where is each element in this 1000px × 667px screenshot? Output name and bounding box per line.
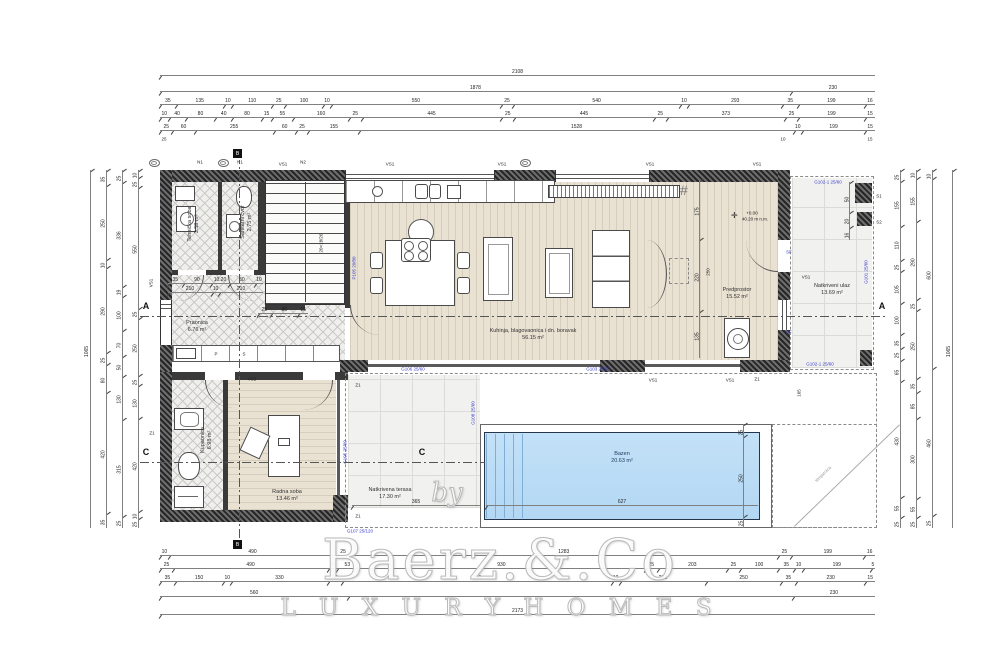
dim-chain-pool-width: 627	[486, 500, 758, 508]
grate-icon: #	[680, 182, 688, 198]
room-area: 3.58 m²	[194, 206, 201, 241]
shaft-tag: SF	[786, 330, 792, 335]
dim-value: 25	[893, 170, 903, 181]
section-marker-c: C	[419, 447, 426, 457]
dim-chain-left-4: 102555025250251304201025	[131, 170, 141, 528]
dim-chain-right-1: 25155110251051003525654305525	[893, 170, 903, 528]
dim-value: 1065	[945, 170, 955, 528]
dim-value: 250	[706, 576, 781, 584]
fixture-tag-icon	[149, 159, 160, 167]
wall-segment	[218, 182, 222, 270]
dim-chain-bottom-1: 104902512832519916	[160, 548, 875, 558]
chair-icon	[457, 252, 470, 269]
dim-chain-right-total: 1065	[945, 170, 955, 528]
dim-value: 25	[131, 177, 141, 187]
dim-chain-hall-2: 21010210	[168, 287, 263, 295]
room-name: Sanitarni čvor	[240, 205, 247, 239]
dim-value: 199	[803, 563, 871, 571]
window	[778, 300, 790, 330]
laptop-icon	[278, 438, 290, 446]
dim-value: 85	[909, 392, 919, 418]
dim-chain-bottom-2: 254901053930252032510035101995	[160, 561, 875, 571]
wall-tag: VS1	[649, 378, 658, 383]
dim-chain-bottom-4: 560230	[160, 589, 875, 599]
wall-segment	[235, 372, 303, 380]
room-area: 6.76 m²	[186, 327, 208, 334]
dim-value: 445	[514, 112, 654, 120]
dim-value: 15	[865, 576, 875, 584]
dim-value: 373	[667, 112, 785, 120]
wall-tag: VS1	[753, 162, 762, 167]
laundry-sink	[176, 348, 196, 359]
section-marker-c: C	[143, 447, 150, 457]
dim-value: 203	[658, 563, 727, 571]
wall-segment	[860, 350, 872, 366]
dim-chain-right-2: 101552902525035853005525	[909, 170, 919, 528]
dim-value: 25	[336, 550, 350, 558]
dim-value: 2173	[160, 609, 875, 617]
dim-value: 15	[865, 112, 875, 120]
dim-value: 130	[115, 376, 125, 419]
dim-value: 199	[791, 550, 864, 558]
shower-icon	[174, 486, 204, 508]
dim-value: 25	[738, 424, 746, 436]
dim-value: 25	[893, 517, 903, 528]
dim-value: 40	[215, 112, 232, 120]
room-label: Kuhinja, blagovaonica i dn. boravak 56.1…	[490, 328, 577, 342]
dim-chain-left-2: 3525010290258042035	[99, 170, 109, 528]
wall-tag: Z1	[754, 377, 759, 382]
section-marker-b: B	[233, 540, 242, 549]
dim-label: 10	[780, 137, 785, 142]
dim-value: 35	[778, 563, 794, 571]
dim-value: 105	[893, 271, 903, 303]
dim-value: 300	[909, 418, 919, 498]
wall-tag: VS1	[646, 162, 655, 167]
window	[555, 170, 650, 182]
dim-value: 60	[274, 125, 296, 133]
wall-segment	[160, 372, 172, 522]
dim-value: 25	[645, 563, 658, 571]
dim-value: 10	[328, 563, 337, 571]
dim-chain-vestibule: 175220135	[694, 180, 702, 358]
dim-value: 1878	[160, 86, 791, 94]
dim-value: 25	[115, 170, 125, 182]
wall-tag: VS1	[498, 162, 507, 167]
dim-value: 550	[131, 187, 141, 307]
dim-value: 16	[864, 550, 875, 558]
wall-segment	[223, 380, 228, 510]
dim-value: 199	[802, 125, 865, 133]
covered-entrance-outline	[790, 176, 874, 370]
room-area: 13.69 m²	[814, 290, 850, 297]
dim-value: 150	[175, 576, 223, 584]
niche-outline	[669, 258, 689, 284]
washer-label: P	[214, 352, 217, 357]
section-marker-a: A	[143, 301, 150, 311]
burner-icon	[404, 251, 414, 261]
dim-chain-porch: 502016	[844, 182, 852, 240]
glass-wall	[337, 380, 340, 495]
wall-tag: VS1	[726, 378, 735, 383]
dim-value: 250	[909, 310, 919, 378]
dim-value: 155	[893, 181, 903, 226]
dim-value: 550	[331, 99, 500, 107]
section-marker-a: A	[879, 301, 886, 311]
room-label: Radna soba 13.46 m²	[272, 489, 302, 503]
dim-value: 55	[272, 112, 294, 120]
room-area: 6.98 m²	[207, 427, 214, 453]
dim-value: 25	[654, 112, 667, 120]
room-label: Kupaonica 6.98 m²	[200, 427, 214, 453]
wall-tag: VS1	[149, 279, 154, 288]
dim-value: 40	[169, 112, 186, 120]
basin-icon	[180, 412, 199, 427]
dim-value: 293	[688, 99, 782, 107]
wall-tag: S2	[876, 220, 882, 225]
dim-value: 490	[169, 550, 336, 558]
chair-icon	[370, 252, 383, 269]
wall-segment	[857, 212, 872, 226]
dim-value: 25	[131, 518, 141, 528]
dim-value: 230	[793, 591, 875, 599]
dim-value: 25	[778, 550, 792, 558]
dim-value: 540	[513, 99, 679, 107]
floor-plan-canvas: 2108 1878230 351351011025100105502554010…	[0, 0, 1000, 667]
shaft-tag: SF	[786, 250, 792, 255]
wall-tag: S1	[876, 194, 882, 199]
wall-segment	[855, 183, 872, 203]
wall-tag: N1	[197, 160, 203, 165]
room-area: 17.30 m²	[368, 494, 411, 501]
room-area: 56.15 m²	[490, 335, 577, 342]
dim-value: 35	[168, 278, 183, 286]
wall-segment	[258, 182, 265, 270]
room-label: Natkrivena terasa 17.30 m²	[368, 487, 411, 501]
wall-tag: VS2	[248, 377, 257, 382]
dim-value: 25	[258, 308, 271, 316]
dim-value: 53	[337, 563, 358, 571]
dim-value: 25	[272, 99, 285, 107]
dim-value: 980	[342, 576, 611, 584]
dim-value: 35	[160, 576, 175, 584]
dim-value: 135	[694, 311, 702, 358]
room-name: Natkriveni ulaz	[814, 283, 850, 290]
dim-value: 16	[844, 227, 852, 240]
sofa	[592, 230, 630, 308]
dim-value: 250	[131, 318, 141, 375]
beam-label: G103 25/60	[586, 367, 610, 372]
room-area: 2.75 m²	[247, 205, 254, 239]
dim-value: 255	[195, 125, 274, 133]
room-name: Kuhinja, blagovaonica i dn. boravak	[490, 328, 577, 335]
dim-value: 627	[486, 500, 758, 508]
dim-value: 25	[785, 112, 798, 120]
dim-value: 20	[844, 212, 852, 227]
dim-value: 110	[232, 99, 272, 107]
beam-label: P105 20/80	[352, 256, 357, 279]
dim-value: 2108	[160, 70, 875, 78]
stair-center-line	[305, 182, 306, 302]
dim-value: 10	[160, 112, 169, 120]
room-area: 13.46 m²	[272, 496, 302, 503]
wall-segment	[254, 270, 265, 275]
wall-segment	[340, 360, 368, 372]
dim-value: 35	[99, 170, 109, 185]
dim-value: 315	[115, 419, 125, 516]
dim-value: 250	[99, 185, 109, 259]
room-label: Tehnička soba 3.58 m²	[187, 206, 201, 241]
window	[160, 300, 172, 345]
beam-label: G108 25/60	[471, 401, 476, 425]
beam-label: G101 25/60	[864, 260, 869, 284]
dim-value: 210	[219, 287, 263, 295]
dim-chain-top-2: 1878230	[160, 84, 875, 94]
dim-value: 365	[352, 500, 480, 508]
section-marker-b: B	[233, 149, 242, 158]
dim-value: 19	[115, 286, 125, 297]
dim-value: 25	[738, 516, 746, 528]
wall-tag: Z1	[149, 431, 154, 436]
dim-value: 1283	[350, 550, 778, 558]
room-name: Tehnička soba	[187, 206, 194, 241]
stair-note: 20×18/26	[319, 234, 324, 253]
dim-value: 490	[173, 563, 328, 571]
dim-value: 930	[358, 563, 645, 571]
wall-tag: VS1	[802, 275, 811, 280]
kitchen-sink-icon	[415, 184, 428, 199]
dim-value	[348, 596, 792, 599]
dim-value: 80	[232, 112, 261, 120]
toilet-icon	[178, 452, 200, 480]
dim-value: 50	[115, 356, 125, 376]
wall-tag: Z1	[355, 383, 360, 388]
dryer-label: S	[242, 352, 245, 357]
dim-value: 25	[131, 375, 141, 385]
dim-chain-bottom-3: 351501033035980102932503523015	[160, 574, 875, 584]
fixture-tag-icon	[218, 159, 229, 167]
hob-knob-icon	[372, 186, 383, 197]
dim-value: 560	[160, 591, 348, 599]
dim-chain-top-5: 2560255602515515281019915	[160, 123, 875, 133]
dim-value: 35	[893, 334, 903, 348]
room-name: Radna soba	[272, 489, 302, 496]
dim-chain-left-total: 1065	[83, 170, 93, 528]
wall-segment	[740, 360, 790, 372]
dim-value: 80	[99, 364, 109, 391]
dim-label: 165	[797, 389, 802, 397]
dim-value: 10	[909, 170, 919, 178]
room-label: Predprostor 15.52 m²	[723, 287, 752, 301]
dim-value: 55	[893, 497, 903, 516]
wall-tag: VS1	[279, 162, 288, 167]
dim-value: 35	[99, 513, 109, 528]
section-line-b	[239, 160, 240, 538]
dim-value: 25	[501, 112, 514, 120]
dim-value: 35	[781, 576, 796, 584]
wall-segment	[160, 510, 348, 522]
dim-value: 130	[131, 385, 141, 417]
dim-value: 25	[296, 125, 308, 133]
elevation-datum: 40.20 m n.m.	[742, 217, 768, 222]
dim-value: 25	[893, 348, 903, 359]
dim-chain-top-4: 104080408015551602544525445253732519915	[160, 110, 875, 120]
burner-icon	[404, 241, 414, 251]
dim-chain-terrace: 365	[352, 500, 480, 508]
dim-value: 430	[893, 381, 903, 497]
dim-value: 293	[620, 576, 706, 584]
wall-segment	[206, 270, 226, 275]
dim-chain-top-total: 2108	[160, 68, 875, 78]
dim-chain-bottom-total: 2173	[160, 607, 875, 617]
dim-chain-hall-1: 359010.208010	[168, 278, 263, 286]
dim-value: 135	[176, 99, 224, 107]
room-name: Praonica	[186, 320, 208, 327]
dim-value: 25	[925, 515, 935, 528]
dim-value: 60	[172, 125, 194, 133]
dim-value: 10	[925, 170, 935, 178]
section-line-a	[140, 316, 888, 317]
dim-value: 16	[865, 99, 875, 107]
dim-value: 290	[99, 267, 109, 353]
dim-chain-left-3: 2533619100705013031525	[115, 170, 125, 528]
fixture-tag-icon	[520, 159, 531, 167]
dim-value: 25	[99, 352, 109, 364]
wall-tag: N1	[237, 160, 243, 165]
dim-value: 15	[262, 112, 272, 120]
beam-label: G107 25/120	[347, 529, 373, 534]
dim-value: 35	[909, 378, 919, 392]
dim-value: 445	[362, 112, 502, 120]
beam-label: G106 25/60	[401, 367, 425, 372]
dim-value: 230	[796, 576, 866, 584]
dim-value: 70	[115, 330, 125, 355]
dim-chain-top-3: 3513510110251001055025540102933519916	[160, 97, 875, 107]
dim-value: 25	[349, 112, 362, 120]
dim-value: 199	[798, 112, 865, 120]
dim-value: 90	[183, 278, 212, 286]
island-top-line	[488, 244, 509, 295]
dim-value: 10	[612, 576, 620, 584]
dim-value: 250	[738, 436, 746, 515]
dim-value: 15	[865, 125, 875, 133]
dim-chain-stair-door: 258015	[258, 308, 308, 316]
dim-value: 25	[160, 563, 173, 571]
dim-value: 35	[160, 99, 176, 107]
dim-value: 230	[791, 86, 875, 94]
dim-value: 155	[308, 125, 359, 133]
dim-value: 35	[328, 576, 343, 584]
room-area: 20.63 m²	[611, 458, 633, 465]
wall-segment	[172, 372, 205, 380]
room-name: Natkrivena terasa	[368, 487, 411, 494]
dim-value: 25	[160, 125, 172, 133]
room-label: Sanitarni čvor 2.75 m²	[240, 205, 254, 239]
kitchen-sink-icon	[429, 184, 441, 199]
dim-label: 15	[867, 137, 872, 142]
elevation-cross-icon: ✛	[731, 211, 738, 220]
entry-door-opening	[778, 240, 790, 272]
section-line-c	[140, 462, 485, 463]
beam-label: G102-1 25/60	[806, 362, 834, 367]
dim-label: 25	[161, 137, 166, 142]
beam-label: G102-1 25/60	[814, 180, 842, 185]
shower-drain-line	[178, 496, 198, 497]
chair-icon	[457, 277, 470, 294]
dim-value: 100	[115, 296, 125, 330]
dim-value: 336	[115, 182, 125, 285]
dim-value: 80	[229, 278, 255, 286]
dim-value: 10	[255, 278, 263, 286]
dim-value: 35	[782, 99, 798, 107]
sliding-glass-door	[645, 364, 740, 367]
dim-value: 25	[909, 299, 919, 310]
dim-value: 100	[893, 303, 903, 334]
dim-value: 55	[909, 498, 919, 517]
dim-chain-pool-height: 2525025	[738, 424, 746, 528]
dim-value: 25	[909, 517, 919, 528]
dim-value: 175	[694, 180, 702, 239]
dim-value: 10.20	[211, 278, 229, 286]
dim-value: 160	[293, 112, 349, 120]
room-name: Bazen	[611, 451, 633, 458]
room-name: Kupaonica	[200, 427, 207, 453]
dim-value: 1065	[83, 170, 93, 528]
burner-icon	[418, 241, 428, 251]
dim-value: 25	[501, 99, 514, 107]
room-area: 15.52 m²	[723, 294, 752, 301]
wall-tag: N2	[300, 160, 306, 165]
room-label: Praonica 6.76 m²	[186, 320, 208, 334]
dim-value: 220	[694, 239, 702, 312]
dim-value: 5	[871, 563, 875, 571]
dim-value: 15	[298, 308, 308, 316]
dim-value: 210	[168, 287, 212, 295]
dim-value: 290	[909, 221, 919, 299]
dim-value: 10	[131, 511, 141, 518]
dim-value: 10	[99, 259, 109, 267]
dim-value: 1528	[359, 125, 793, 133]
elevation-level: +0.00	[746, 211, 757, 216]
dim-value: 25	[115, 516, 125, 528]
dim-value: 330	[231, 576, 327, 584]
dim-value: 110	[893, 226, 903, 259]
dim-value: 10	[794, 563, 803, 571]
wall-tag: VS1	[386, 162, 395, 167]
dim-value: 199	[798, 99, 865, 107]
coffee-table-inner	[549, 253, 570, 294]
dim-value: 10	[794, 125, 802, 133]
dim-value: 100	[740, 563, 778, 571]
shelf-icon	[175, 186, 195, 201]
room-label: Natkriveni ulaz 13.69 m²	[814, 283, 850, 297]
dim-value: 65	[893, 360, 903, 382]
dim-value: 10	[160, 550, 169, 558]
dim-value: 460	[925, 368, 935, 515]
dim-value: 420	[99, 392, 109, 514]
dim-value: 80	[186, 112, 215, 120]
room-label: Bazen 20.63 m²	[611, 451, 633, 465]
dim-value: 155	[909, 178, 919, 222]
dim-value: 50	[844, 182, 852, 212]
sideboard	[548, 185, 680, 198]
dim-label: 250	[706, 268, 711, 276]
dim-value: 80	[271, 308, 299, 316]
dim-value: 600	[925, 178, 935, 368]
room-name: Predprostor	[723, 287, 752, 294]
dim-value: 25	[893, 260, 903, 271]
burner-icon	[418, 251, 428, 261]
